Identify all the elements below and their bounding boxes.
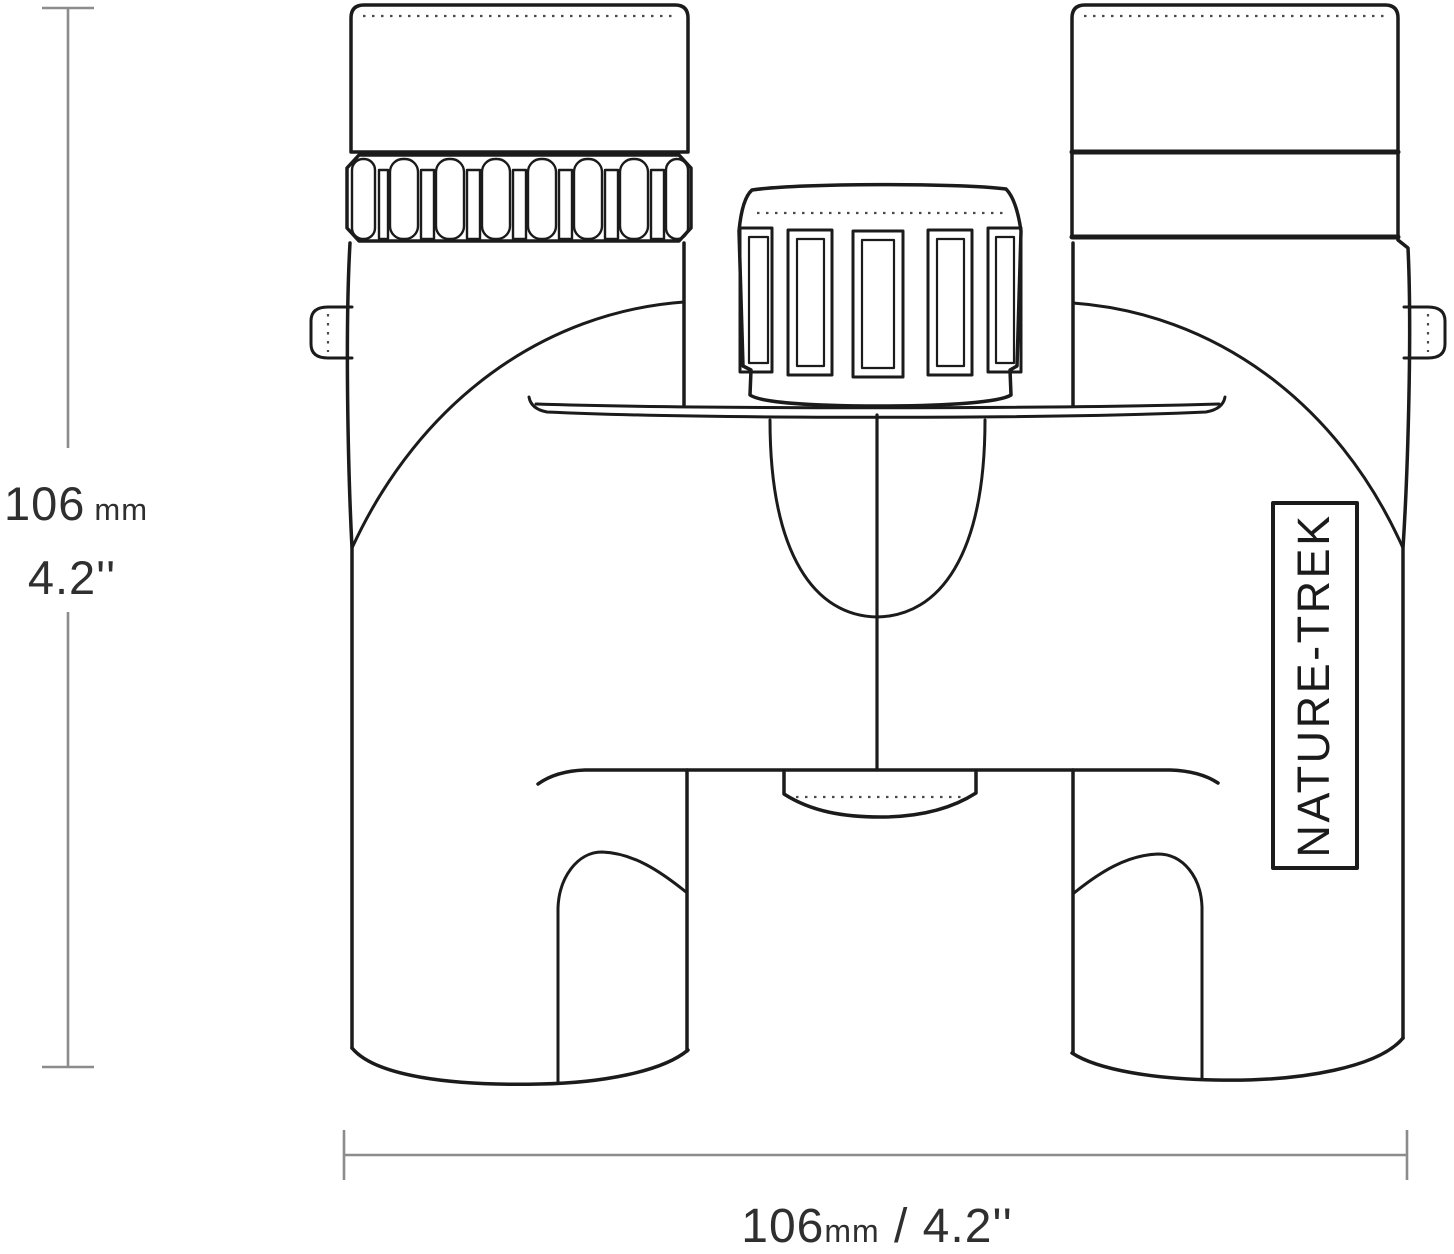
hinge-bottom-cap [784,772,976,817]
left-barrel-bottom-edge [352,1048,688,1084]
vertical-dimension: 106mm 4.2'' [4,8,148,1067]
right-barrel: NATURE-TREK [1072,5,1445,1080]
focus-knob [739,185,1021,406]
right-eyecup-band [1072,152,1398,237]
left-barrel-outer-edge [347,243,352,1048]
left-eyecup-knurled-ring [347,155,691,241]
right-arch-curve [1074,854,1202,907]
diagram-canvas: 106mm 4.2'' 106mm / 4.2'' [0,0,1454,1254]
width-label: 106mm / 4.2'' [741,1200,1012,1253]
left-barrel [311,5,691,1084]
brand-label: NATURE-TREK [1288,513,1339,857]
brand-plate: NATURE-TREK [1273,503,1357,868]
height-label-mm: 106mm [4,477,148,530]
left-eyecup-cap [351,5,688,152]
lower-bridge-edge [538,770,1218,784]
right-barrel-bottom-edge [1072,1038,1403,1080]
left-barrel-shoulder-seam [352,302,684,548]
binoculars-dimension-diagram: 106mm 4.2'' 106mm / 4.2'' [0,0,1454,1254]
right-eyecup-cap [1072,5,1398,152]
height-label-inches: 4.2'' [28,551,116,604]
right-barrel-shoulder-seam [1073,303,1403,548]
focus-knob-body [739,185,1021,406]
horizontal-dimension: 106mm / 4.2'' [344,1130,1407,1253]
bridge-hinge [529,397,1225,817]
focus-knob-ribs [740,228,1021,377]
left-arch-curve [558,852,686,908]
right-barrel-outer-edge [1398,240,1410,1038]
